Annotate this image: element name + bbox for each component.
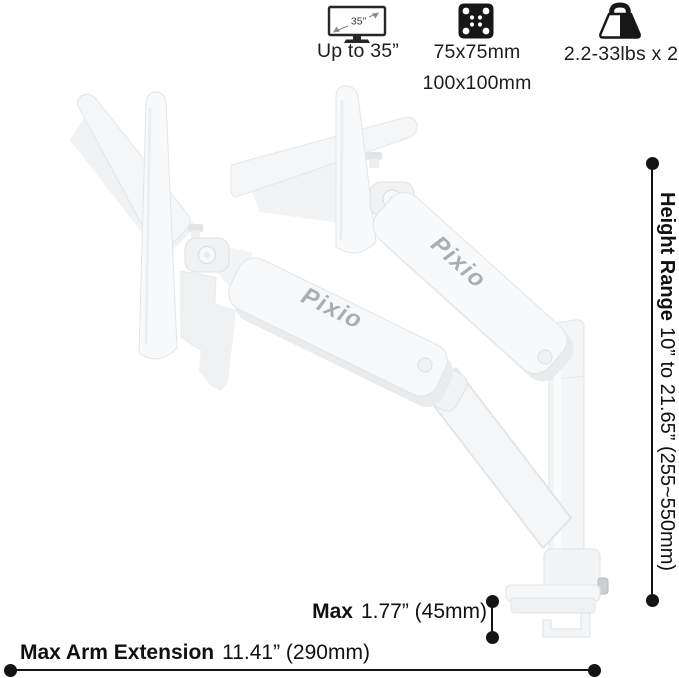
clamp-dot-bottom bbox=[486, 631, 499, 644]
plate-ghost-lower-2 bbox=[199, 300, 236, 391]
arm-extension-dot-right bbox=[588, 664, 601, 677]
height-range-value: 10” to 21.65” (255~550mm) bbox=[656, 327, 678, 571]
clamp-thickness-label: Max1.77” (45mm) bbox=[280, 600, 487, 624]
joint-screw-center bbox=[204, 252, 210, 258]
arm-extension-dot-left bbox=[4, 664, 17, 677]
clamp-label-bold: Max bbox=[312, 600, 353, 623]
quick-release-tab-2 bbox=[369, 159, 379, 168]
plate-vertical bbox=[139, 92, 177, 359]
dual-monitor-arm-illustration: Pixio Pixio bbox=[0, 0, 679, 678]
elbow-joint bbox=[418, 358, 432, 372]
pole-and-clamp bbox=[428, 320, 608, 637]
plate-shading bbox=[341, 100, 342, 240]
clamp-body bbox=[511, 598, 595, 613]
clamp-under-desk-hook bbox=[543, 613, 590, 637]
height-range-label: Height Range10” to 21.65” (255~550mm) bbox=[652, 163, 678, 600]
product-spec-sheet: 35” Up to 35” 75x75mm 100x100mm 2.2-33lb… bbox=[0, 0, 679, 678]
clamp-dot-top bbox=[486, 595, 499, 608]
arm-extension-label-bold: Max Arm Extension bbox=[20, 641, 214, 664]
clamp-value: 1.77” (45mm) bbox=[361, 600, 487, 623]
elbow-joint bbox=[538, 350, 552, 364]
arm-extension-value: 11.41” (290mm) bbox=[222, 641, 370, 664]
arm-extension-line bbox=[10, 669, 594, 671]
quick-release-tab bbox=[366, 152, 382, 160]
arm-extension-label: Max Arm Extension11.41” (290mm) bbox=[20, 641, 370, 665]
height-range-label-bold: Height Range bbox=[656, 192, 678, 321]
